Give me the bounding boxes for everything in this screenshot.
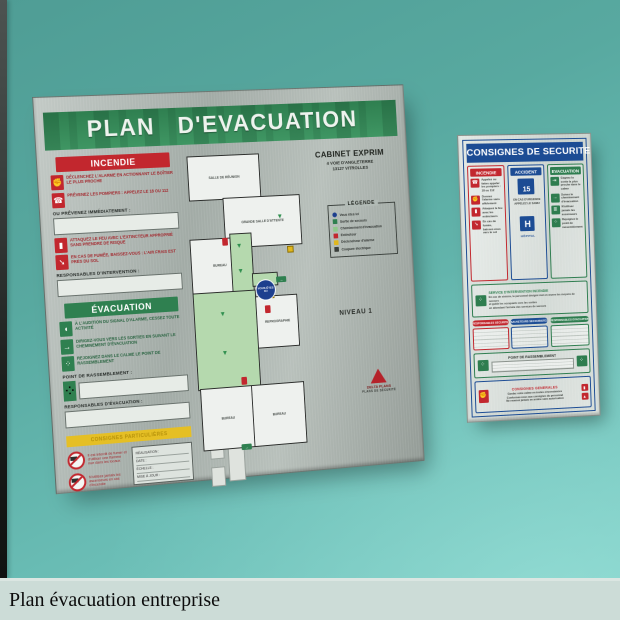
run-icon: → [551, 193, 560, 202]
extinguisher-icon: ▮ [581, 384, 588, 391]
write-in-lines [491, 358, 574, 373]
consignes-title: CONSIGNES DE SECURITE [466, 142, 583, 163]
consigne-row: ⇥ Gagnez la sortie la plus proche dans l… [550, 176, 582, 191]
alarm-sound-icon: ◖ [59, 321, 73, 337]
fire-equipment-icons: ▮ ▲ [581, 384, 588, 400]
alarm-hand-icon: ✊ [50, 175, 64, 191]
cutoff-swatch [334, 247, 339, 252]
consignes-generales-band: ✊ CONSIGNES GENERALES Gardez votre calme… [474, 375, 591, 413]
consigne-row: ▮ Attaquez le feu avec les extincteurs [471, 207, 503, 219]
extinguisher-icon: ▮ [471, 208, 480, 217]
client-info: CABINET EXPRIM 4 VOIE D'ANGLETERRE 13127… [299, 146, 400, 173]
legend-title: LÉGENDE [345, 200, 378, 207]
sauveteurs-secouristes: SAUVETEURS SECOURISTES [511, 318, 549, 349]
consigne-row: → Suivez le cheminement d'évacuation [551, 193, 582, 205]
write-in-box [550, 323, 589, 346]
column-incendie-header: INCENDIE [470, 168, 502, 177]
smoke-crawl-icon: ➘ [55, 255, 69, 271]
extinguisher-marker-icon [222, 238, 228, 246]
assembly-icon: ⁘ [551, 218, 560, 227]
you-are-here-swatch [332, 213, 337, 218]
evac-arrow-icon: ▼ [276, 213, 284, 221]
hospital-label: HÔPITAL [512, 234, 543, 239]
room-bureau-2: BUREAU [200, 385, 256, 451]
consigne-row: ≣ N'utilisez jamais les ascenseurs [551, 205, 582, 217]
exit-sign-icon: → [241, 443, 251, 450]
extinguisher-marker-icon [265, 305, 271, 313]
consigne-row: ☎ Appelez ou faites appeler les pompiers… [470, 178, 502, 193]
plan-title: PLAN D'EVACUATION [86, 106, 358, 144]
door-frame-edge [0, 0, 7, 578]
alarm-swatch [334, 240, 339, 245]
consignes-columns: INCENDIE ☎ Appelez ou faites appeler les… [467, 163, 587, 281]
floor-plan: SALLE DE RÉUNION GRANDE SALLE D'ATTENTE … [182, 149, 315, 457]
caption-text: Plan évacuation entreprise [9, 589, 220, 612]
maker-logo: DELTA PLANS PLANS DE SÉCURITÉ [353, 367, 404, 395]
exit-run-icon: → [60, 339, 73, 355]
interdiction-item: N'utilisez jamais les ascenseurs en cas … [68, 469, 130, 492]
alarm-hand-icon: ✊ [471, 195, 480, 204]
instructions-sidebar: INCENDIE ✊ Déclenchez l'alarme en action… [49, 152, 194, 496]
caption-bar: Plan évacuation entreprise [0, 578, 620, 620]
smoke-crawl-icon: ➘ [472, 221, 481, 230]
assembly-point-icon: ⁘ [477, 359, 488, 370]
interdiction-item: Il est interdit de fumer et d'utiliser u… [67, 447, 129, 470]
phone-icon: ☎ [470, 179, 479, 188]
legend-box: LÉGENDE Vous êtes ici Sortie de secours … [327, 202, 398, 259]
fire-icon: ▲ [581, 392, 588, 399]
intervention-icon: ⁘ [475, 295, 486, 306]
column-evacuation-header: EVACUATION [550, 166, 581, 175]
column-evacuation: EVACUATION ⇥ Gagnez la sortie la plus pr… [547, 163, 588, 278]
phone-icon: ☎ [52, 192, 66, 208]
evacuation-plan-board: PLAN D'EVACUATION INCENDIE ✊ Déclenchez … [32, 84, 425, 494]
room-bureau-3: BUREAU [251, 381, 307, 447]
triangle-logo-icon [370, 368, 387, 383]
no-open-flame-icon [67, 451, 85, 470]
evac-arrow-icon: ▼ [219, 311, 227, 319]
consigne-row: ✊ Donnez l'alarme sans affolement [471, 194, 503, 206]
column-accident: ACCIDENT 15 EN CAS D'URGENCE APPELEZ LE … [507, 164, 548, 280]
no-elevator-icon [68, 473, 86, 492]
extinguisher-marker-icon [241, 377, 247, 385]
photo-scene: PLAN D'EVACUATION INCENDIE ✊ Déclenchez … [0, 0, 620, 620]
furniture [211, 466, 226, 487]
responsables-securite: RESPONSABLES SECURITE [472, 319, 509, 350]
samu-label: EN CAS D'URGENCE APPELEZ LE SAMU [511, 197, 543, 206]
consignes-securite-board: CONSIGNES DE SECURITE INCENDIE ☎ Appelez… [457, 133, 601, 423]
consigne-row: ➘ En cas de fumée, baissez-vous vers le … [472, 220, 504, 235]
write-in-box [511, 325, 549, 348]
hospital-icon: H [520, 216, 535, 231]
furniture [228, 445, 247, 481]
room-salle-reunion: SALLE DE RÉUNION [186, 153, 261, 201]
responsables-evacuation: RESPONSABLES EVACUATION [550, 316, 590, 347]
alarm-hand-icon: ✊ [478, 390, 488, 403]
alarm-marker-icon [287, 246, 294, 253]
room-reprographie: REPROGRAPHIE [255, 294, 300, 349]
document-info-box: RÉALISATION : DATE : ÉCHELLE : MISE À JO… [131, 442, 194, 486]
write-in-box [473, 327, 510, 350]
extinguisher-swatch [333, 233, 338, 238]
level-label: NIVEAU 1 [317, 306, 394, 318]
assembly-icon: ⁘ [61, 356, 74, 372]
consignes-frame: CONSIGNES DE SECURITE INCENDIE ☎ Appelez… [462, 138, 596, 418]
exit-icon: ⇥ [550, 177, 559, 186]
evac-arrow-icon: ▼ [221, 350, 229, 358]
interdictions-row: Il est interdit de fumer et d'utiliser u… [67, 442, 194, 496]
column-accident-header: ACCIDENT [510, 167, 542, 176]
plan-title-band: PLAN D'EVACUATION [43, 100, 398, 151]
rassemblement-band: ⁘ POINT DE RASSEMBLEMENT ⁘ [473, 348, 590, 378]
room-accueil [193, 290, 262, 392]
interdictions: Il est interdit de fumer et d'utiliser u… [67, 447, 130, 496]
stairs-icon: ≣ [551, 206, 560, 215]
samu-15-icon: 15 [518, 178, 535, 194]
evac-arrow-icon: ▼ [237, 268, 245, 276]
service-intervention-band: ⁘ SERVICE D'INTERVENTION INCENDIE En cas… [471, 280, 588, 317]
responsables-row: RESPONSABLES SECURITE SAUVETEURS SECOURI… [472, 316, 589, 350]
assembly-point-icon: ⁘ [576, 355, 587, 366]
route-swatch [333, 226, 338, 231]
evac-arrow-icon: ▼ [235, 243, 243, 251]
exit-sign-icon: → [276, 276, 286, 282]
exit-swatch [333, 219, 338, 224]
consigne-row: ⁘ Rejoignez le point de rassemblement [551, 218, 582, 230]
assembly-point-icon: ⁘ [63, 381, 77, 402]
legend-item: Coupure électrique [334, 244, 393, 252]
extinguisher-icon: ▮ [54, 237, 68, 253]
column-incendie: INCENDIE ☎ Appelez ou faites appeler les… [467, 165, 509, 282]
incendie-header: INCENDIE [55, 152, 170, 172]
